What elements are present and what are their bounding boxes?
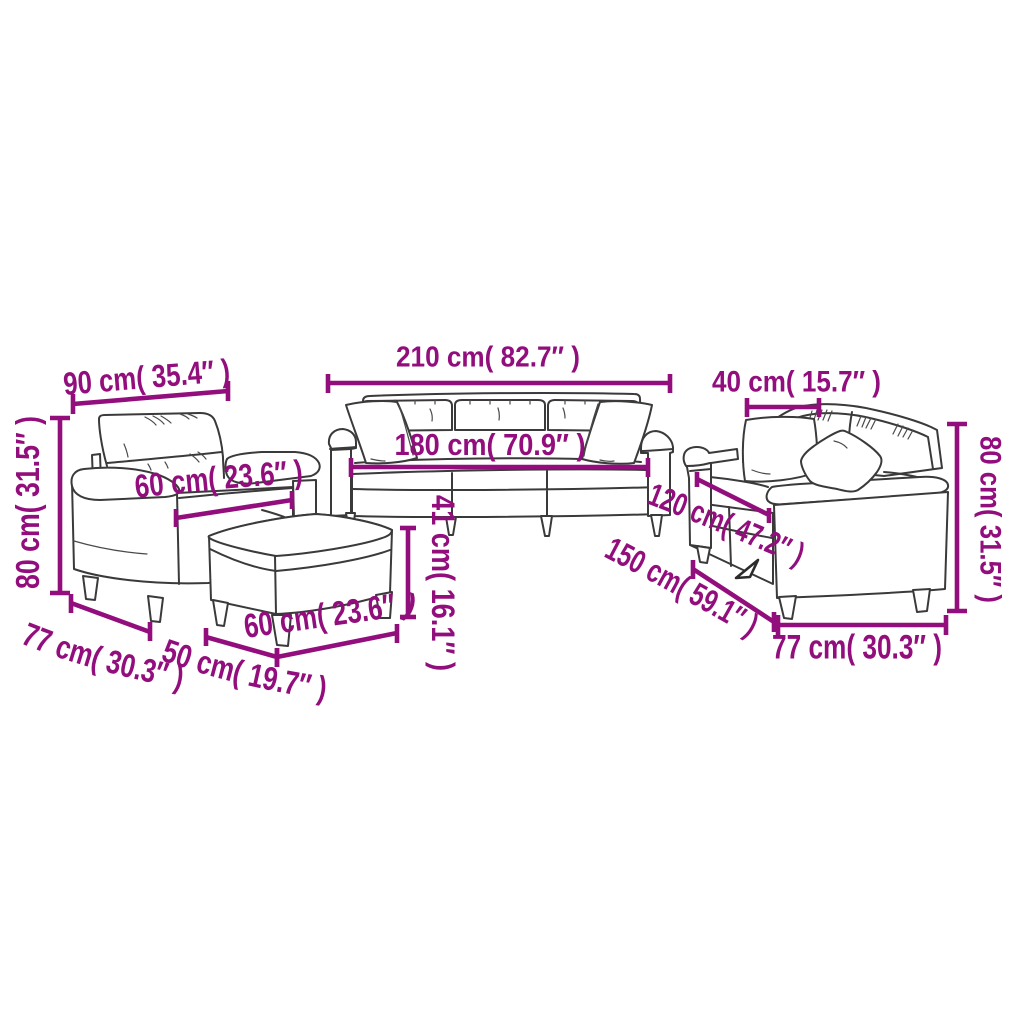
- svg-text:80 cm( 31.5″ ): 80 cm( 31.5″ ): [974, 436, 1007, 603]
- svg-text:77 cm( 30.3″ ): 77 cm( 30.3″ ): [772, 629, 942, 667]
- svg-text:210 cm( 82.7″ ): 210 cm( 82.7″ ): [396, 342, 580, 374]
- svg-text:80 cm( 31.5″ ): 80 cm( 31.5″ ): [9, 416, 46, 589]
- svg-text:40 cm( 15.7″ ): 40 cm( 15.7″ ): [712, 366, 881, 399]
- svg-text:180 cm( 70.9″ ): 180 cm( 70.9″ ): [395, 427, 586, 462]
- svg-text:41 cm( 16.1″ ): 41 cm( 16.1″ ): [425, 495, 461, 671]
